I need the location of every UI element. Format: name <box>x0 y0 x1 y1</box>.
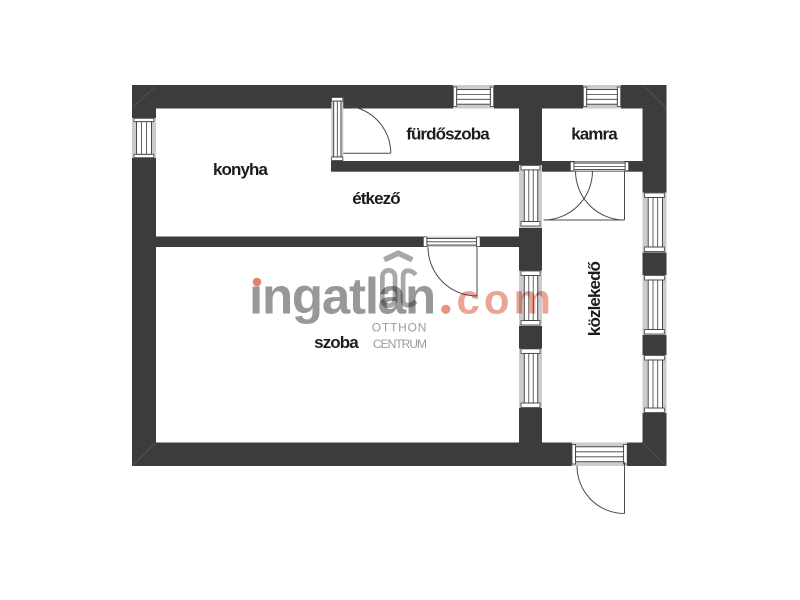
svg-text:szoba: szoba <box>314 333 359 352</box>
svg-text:ıngatlan: ıngatlan <box>249 268 435 325</box>
svg-text:étkező: étkező <box>352 189 400 208</box>
svg-text:közlekedő: közlekedő <box>585 261 604 336</box>
svg-text:fürdőszoba: fürdőszoba <box>406 125 490 144</box>
svg-text:kamra: kamra <box>571 125 618 144</box>
svg-text:com: com <box>457 276 555 323</box>
svg-text:konyha: konyha <box>213 160 269 179</box>
svg-text:CENTRUM: CENTRUM <box>373 337 427 351</box>
